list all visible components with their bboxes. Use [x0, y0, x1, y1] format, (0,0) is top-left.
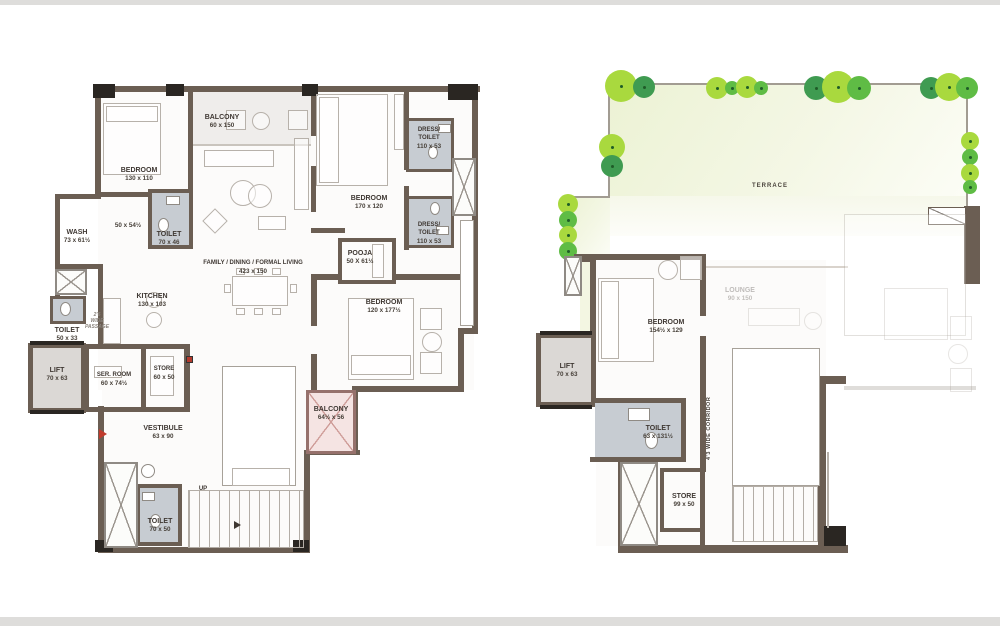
armchair-icon — [420, 352, 442, 374]
stair-up-label: UP — [199, 486, 207, 494]
wardrobe-icon — [394, 94, 404, 150]
sink-icon — [166, 196, 180, 205]
lift-door-cap — [30, 410, 84, 414]
ghost-wall-line — [706, 266, 848, 268]
toilet-icon — [430, 202, 440, 215]
wall-segment — [352, 386, 464, 392]
terrace-railing — [608, 83, 968, 85]
shaft — [104, 462, 138, 548]
toilet-icon — [60, 302, 71, 316]
room-label-bedroom: BEDROOM154½ x 129 — [648, 318, 685, 335]
tree-icon — [601, 155, 623, 177]
column — [166, 84, 184, 96]
room-label-lift: LIFT70 x 63 — [556, 362, 577, 379]
room-label-pooja: POOJA50 X 61½ — [347, 249, 374, 266]
wall-segment — [84, 407, 190, 412]
floorplan-canvas: BALCONY60 x 150 BEDROOM130 x 110 BEDROOM… — [0, 0, 1000, 626]
shaft — [55, 269, 87, 295]
kitchen-hob-icon — [146, 312, 162, 328]
wall-segment — [311, 228, 345, 233]
room-label-kitchen: KITCHEN130 x 103 — [136, 292, 167, 309]
room-label-wash: WASH73 x 61½ — [64, 228, 90, 245]
wall-segment — [681, 398, 686, 462]
wall-segment — [95, 86, 480, 92]
dining-chair-icon — [224, 284, 231, 293]
armchair-icon — [420, 308, 442, 330]
shaft — [564, 256, 582, 296]
ghost-wall-line — [844, 386, 976, 390]
room-label-toilet: TOILET63 x 131½ — [643, 424, 673, 441]
table-icon — [258, 216, 286, 230]
room-label-dress-toilet-2: DRESS/TOILET110 x 53 — [417, 222, 441, 246]
tree-icon — [847, 76, 871, 100]
tree-icon — [754, 81, 768, 95]
ghost-armchair-icon — [950, 316, 972, 340]
scan-edge-top — [0, 0, 1000, 5]
staircase — [188, 490, 304, 548]
pooja-cabinet-icon — [372, 244, 384, 278]
shaft — [620, 462, 658, 546]
wall-segment — [184, 344, 190, 412]
room-label-family-dining: FAMILY / DINING / FORMAL LIVING423 x 150 — [203, 260, 303, 276]
room-label-toilet-1: TOILET70 x 46 — [157, 230, 182, 247]
dimension-label-passage: 50 x 54½ — [115, 222, 141, 230]
room-label-balcony-2: BALCONY64½ x 56 — [314, 405, 349, 422]
scan-edge-bottom — [0, 617, 1000, 626]
lift-door-cap — [540, 331, 592, 335]
ghost-room-label-lounge: LOUNGE90 x 150 — [725, 286, 755, 303]
lift-door-cap — [540, 405, 592, 409]
sink-icon — [142, 492, 155, 501]
wall-segment — [458, 328, 464, 392]
dining-chair-icon — [236, 308, 245, 315]
note-corridor-width: 4'3 WIDE CORRIDOR — [706, 368, 720, 488]
sofa-icon — [204, 150, 274, 167]
armchair-icon — [680, 256, 702, 280]
room-label-ser-room: SER. ROOM60 x 74½ — [97, 372, 131, 388]
dining-chair-icon — [254, 308, 263, 315]
tree-icon — [963, 180, 977, 194]
sofa-icon — [232, 468, 290, 486]
sofa-icon — [294, 138, 309, 210]
room-label-bedroom-3: BEDROOM120 x 177½ — [366, 298, 403, 315]
wall-segment — [818, 376, 846, 384]
ghost-table-icon — [948, 344, 968, 364]
entry-arrow-icon — [99, 429, 107, 439]
room-label-balcony-top: BALCONY60 x 150 — [205, 113, 240, 130]
table-icon — [252, 112, 270, 130]
bed-pillow-icon — [351, 355, 411, 375]
stair-direction-arrow-icon — [234, 521, 241, 529]
note-passage-width: 2'6WIDEPASSAGE — [85, 312, 109, 330]
vanity-icon — [141, 464, 155, 478]
wall-segment — [95, 86, 101, 196]
column — [448, 84, 478, 100]
bed-pillow-icon — [319, 97, 339, 183]
shaft — [452, 158, 476, 216]
staircase — [732, 486, 818, 542]
tree-icon — [961, 132, 979, 150]
wall-segment — [618, 545, 848, 553]
dining-table-icon — [232, 276, 288, 306]
sink-icon — [628, 408, 650, 421]
room-label-dress-toilet-1: DRESS/TOILET110 x 53 — [417, 127, 441, 151]
wall-segment — [84, 344, 190, 349]
dining-chair-icon — [290, 284, 297, 293]
room-label-terrace: TERRACE — [752, 183, 788, 191]
ghost-bed-icon — [884, 288, 948, 340]
room-label-bedroom-1: BEDROOM130 x 110 — [121, 166, 158, 183]
double-height-cutout — [732, 348, 820, 486]
room-label-toilet-3: TOILET70 x 50 — [148, 517, 173, 534]
ghost-wall-line — [827, 452, 829, 528]
armchair-icon — [288, 110, 308, 130]
room-label-vestibule: VESTIBULE63 x 90 — [143, 424, 182, 441]
bed-pillow-icon — [106, 106, 158, 122]
tree-icon — [633, 76, 655, 98]
dining-chair-icon — [272, 308, 281, 315]
wall-segment — [141, 344, 146, 412]
room-label-bedroom-2: BEDROOM170 x 120 — [351, 194, 388, 211]
wall-segment — [304, 450, 310, 553]
table-icon — [658, 260, 678, 280]
tree-icon — [962, 149, 978, 165]
room-label-toilet-2: TOILET50 x 33 — [55, 326, 80, 343]
column — [824, 526, 846, 546]
ghost-table-icon — [804, 312, 822, 330]
ghost-wall — [964, 206, 980, 284]
room-label-store: STORE99 x 50 — [672, 492, 696, 509]
room-label-lift: LIFT70 x 63 — [46, 366, 67, 383]
wall-segment — [311, 354, 317, 390]
closet-strip — [460, 220, 474, 326]
ghost-sofa-icon — [748, 308, 800, 326]
room-label-store: STORE60 x 50 — [153, 366, 174, 382]
bed-pillow-icon — [601, 281, 619, 359]
terrace-floor — [608, 84, 968, 198]
gas-point-icon — [186, 356, 193, 363]
table-icon — [422, 332, 442, 352]
coffee-table-icon — [248, 184, 272, 208]
tree-icon — [956, 77, 978, 99]
wall-segment — [311, 274, 317, 326]
wall-segment — [188, 90, 193, 194]
column — [93, 84, 115, 98]
